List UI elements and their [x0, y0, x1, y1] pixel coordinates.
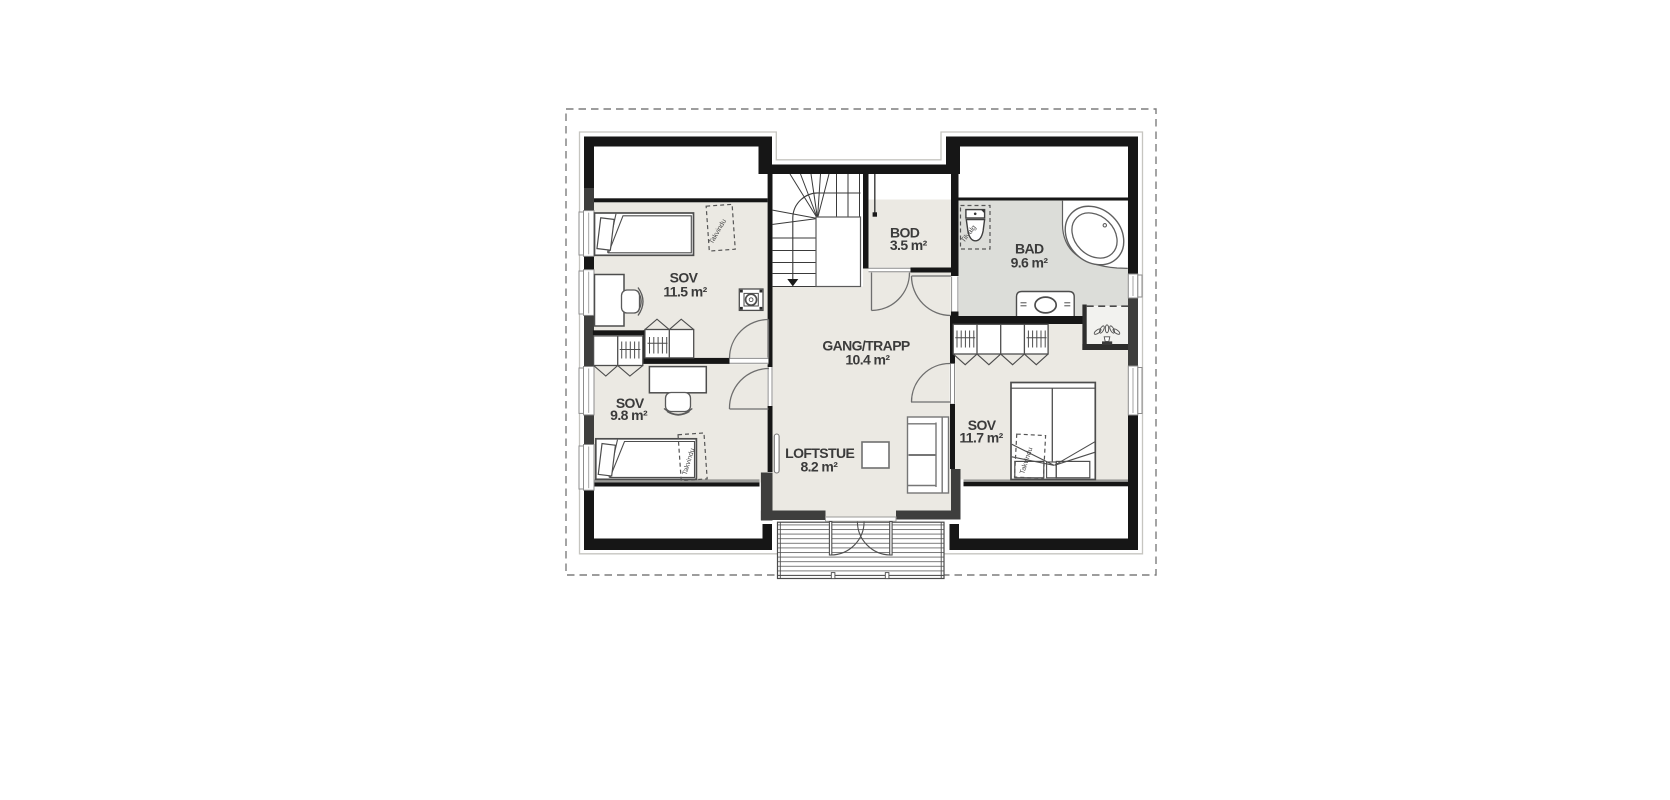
svg-text:3.5 m²: 3.5 m²: [890, 237, 928, 253]
svg-text:9.6 m²: 9.6 m²: [1011, 255, 1049, 271]
svg-text:8.2 m²: 8.2 m²: [800, 459, 838, 475]
svg-text:11.7 m²: 11.7 m²: [959, 430, 1003, 446]
svg-text:10.4 m²: 10.4 m²: [845, 351, 890, 367]
svg-text:9.8 m²: 9.8 m²: [610, 407, 648, 423]
svg-text:11.5 m²: 11.5 m²: [663, 284, 707, 300]
